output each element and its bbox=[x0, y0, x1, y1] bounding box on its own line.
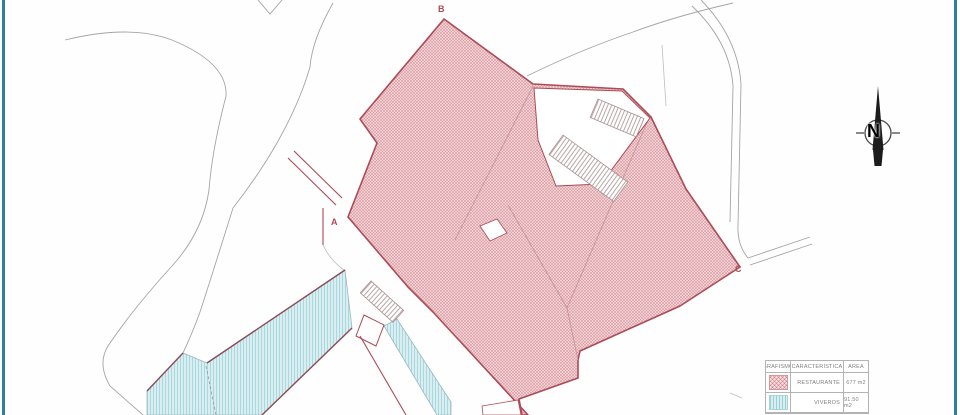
plan-sheet: B A C N GRAFISMO CARACTERISTICA AREA RES… bbox=[0, 0, 960, 415]
restaurante-hatch-swatch bbox=[769, 375, 788, 390]
road-path bbox=[701, 0, 810, 258]
road-path bbox=[258, 0, 282, 14]
road-path bbox=[730, 393, 742, 398]
road-path bbox=[527, 3, 733, 76]
compass-foot bbox=[873, 150, 883, 166]
sheet-border-left bbox=[2, 0, 5, 415]
legend-row-name: VIVEROS bbox=[791, 393, 844, 413]
legend-swatch-cell bbox=[766, 373, 791, 393]
access-wall-line bbox=[294, 151, 342, 198]
north-letter: N bbox=[867, 121, 880, 142]
legend-row-area: 91.50 m2 bbox=[844, 393, 868, 413]
point-label-b: B bbox=[438, 4, 445, 14]
legend-swatch-cell bbox=[766, 393, 791, 413]
road-path bbox=[662, 45, 666, 106]
viveros-hatch-swatch bbox=[769, 395, 788, 410]
legend-row-area: 677 m2 bbox=[844, 373, 868, 393]
bottom-notch bbox=[482, 400, 521, 415]
site-plan-canvas bbox=[0, 0, 960, 415]
viveros-strip-polygon bbox=[384, 319, 451, 415]
legend-table: GRAFISMO CARACTERISTICA AREA RESTAURANTE… bbox=[765, 360, 869, 414]
road-path bbox=[692, 6, 733, 222]
road-path bbox=[65, 32, 226, 415]
legend-header-area: AREA bbox=[844, 361, 868, 373]
viveros-parcel bbox=[147, 270, 451, 415]
point-label-c: C bbox=[735, 264, 742, 274]
legend-header-grafismo: GRAFISMO bbox=[766, 361, 791, 373]
legend-header-caracteristica: CARACTERISTICA bbox=[791, 361, 844, 373]
small-structure bbox=[356, 315, 384, 346]
road-path bbox=[323, 245, 344, 270]
legend-row-name: RESTAURANTE bbox=[791, 373, 844, 393]
viveros-main-polygon bbox=[147, 270, 352, 415]
sheet-border-right bbox=[954, 0, 957, 415]
access-wall-line bbox=[288, 158, 336, 205]
point-label-a: A bbox=[331, 217, 338, 227]
